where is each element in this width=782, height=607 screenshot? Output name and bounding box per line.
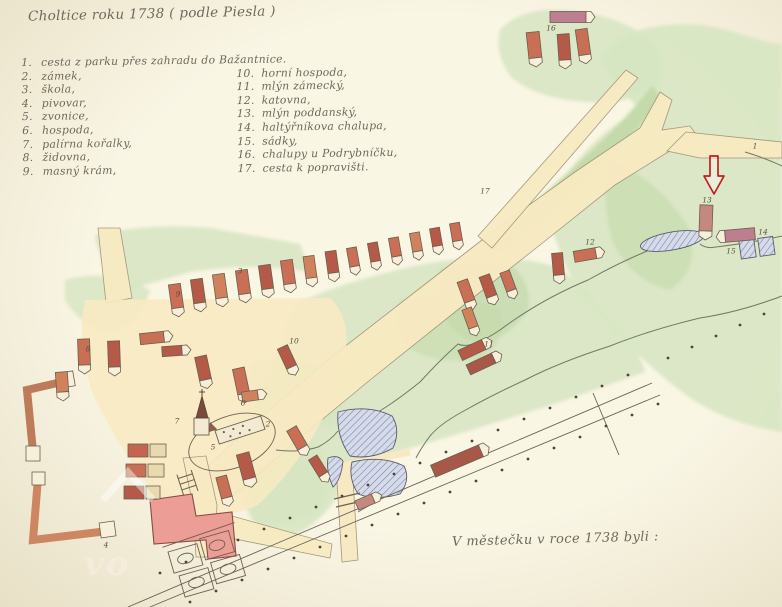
legend-item-number: 5.: [17, 110, 33, 124]
legend-item-number: 8.: [17, 151, 33, 165]
tree-dot: [449, 491, 452, 494]
building-icon: [325, 250, 340, 282]
tree-dot: [601, 385, 604, 388]
legend-item-number: 15.: [237, 134, 253, 148]
map-label-13: 13: [702, 196, 712, 205]
map-label-3: 3: [238, 267, 243, 276]
tree-dot: [215, 590, 218, 593]
building-icon: [303, 255, 318, 287]
building-icon: [431, 441, 492, 477]
tree-dot: [763, 313, 766, 316]
building-icon: [450, 222, 465, 250]
tree-dot: [371, 524, 374, 527]
legend-item-label: mlýn zámecký,: [261, 79, 345, 93]
map-label-7: 7: [175, 417, 180, 426]
legend-item-number: 13.: [237, 107, 253, 121]
building-icon: [108, 341, 121, 376]
legend-item-label: hospoda,: [42, 123, 94, 137]
legend-item-label: horní hospoda,: [261, 65, 347, 79]
legend-item-number: 2.: [16, 70, 32, 84]
map-label-11: 11: [484, 340, 494, 349]
building-icon: [699, 205, 713, 240]
map-label-5: 5: [211, 443, 216, 452]
tree-dot: [667, 357, 670, 360]
map-label-15: 15: [726, 247, 736, 256]
legend-item-label: zámek,: [41, 69, 82, 83]
legend-item-label: masný krám,: [43, 164, 117, 178]
tree-dot: [267, 568, 270, 571]
legend-item-number: 7.: [17, 138, 33, 152]
map-label-16: 16: [546, 24, 556, 33]
map-label-8: 8: [86, 345, 91, 354]
tree-dot: [497, 429, 500, 432]
tree-dot: [715, 335, 718, 338]
tree-dot: [159, 572, 162, 575]
legend-item-number: 6.: [17, 124, 33, 138]
building-icon: [162, 345, 192, 357]
tree-dot: [471, 440, 474, 443]
building-icon: [55, 372, 69, 402]
building-icon: [258, 264, 274, 298]
tree-dot: [397, 513, 400, 516]
building-icon: [550, 12, 595, 23]
map-label-10: 10: [289, 337, 299, 346]
tree-dot: [367, 484, 370, 487]
building-icon: [552, 253, 566, 285]
legend-item-number: 14.: [237, 121, 253, 135]
tree-dot: [319, 546, 322, 549]
tree-dot: [739, 324, 742, 327]
building-icon: [430, 227, 445, 255]
legend-item-number: 11.: [236, 80, 252, 94]
tree-dot: [289, 517, 292, 520]
map-label-4: 4: [104, 541, 109, 550]
tree-dot: [631, 414, 634, 417]
map-label-2: 2: [266, 420, 271, 429]
tree-dot: [523, 418, 526, 421]
map-page: Choltice roku 1738 ( podle Piesla ) 1.ce…: [0, 0, 782, 607]
legend-item-label: sádky,: [262, 134, 298, 147]
tree-dot: [575, 396, 578, 399]
tree-dot: [445, 451, 448, 454]
legend-item-number: 12.: [237, 94, 253, 108]
legend-item-label: chalupy u Podrybníčku,: [262, 146, 397, 161]
legend-item-label: židovna,: [42, 150, 90, 164]
tree-dot: [549, 407, 552, 410]
map-label-12: 12: [585, 238, 595, 247]
tree-dot: [475, 480, 478, 483]
legend-item-label: cesta k popravišti.: [263, 160, 369, 174]
map-label-1: 1: [753, 142, 758, 151]
legend-column-2: 10.horní hospoda,11.mlýn zámecký,12.kato…: [236, 62, 567, 175]
legend-item-label: katovna,: [262, 93, 311, 107]
legend-item-label: zvonice,: [42, 110, 89, 124]
legend-item-number: 9.: [18, 165, 34, 179]
building-icon: [409, 232, 424, 261]
tree-dot: [189, 601, 192, 604]
legend-item-number: 16.: [237, 148, 253, 162]
legend-item-number: 3.: [16, 83, 32, 97]
tree-dot: [345, 535, 348, 538]
tree-dot: [527, 458, 530, 461]
tree-dot: [341, 495, 344, 498]
tree-dot: [241, 579, 244, 582]
tree-dot: [627, 374, 630, 377]
tree-dot: [579, 436, 582, 439]
tree-dot: [293, 557, 296, 560]
tree-dot: [315, 506, 318, 509]
map-label-17: 17: [480, 187, 490, 196]
map-label-14: 14: [758, 228, 768, 237]
legend-item-label: haltýřníkova chalupa,: [262, 119, 387, 134]
map-label-6: 6: [241, 399, 246, 408]
farm-buildings: [124, 444, 166, 499]
legend-item-number: 10.: [236, 66, 252, 80]
tree-dot: [423, 502, 426, 505]
tree-dot: [605, 425, 608, 428]
legend-item-label: pivovar,: [42, 96, 87, 110]
legend-item-number: 4.: [17, 97, 33, 111]
legend-item-label: palírna kořalky,: [42, 136, 132, 150]
tree-dot: [393, 473, 396, 476]
legend-item-label: škola,: [41, 83, 75, 96]
legend-item-label: mlýn poddanský,: [262, 106, 358, 120]
tree-dot: [657, 403, 660, 406]
tree-dot: [263, 528, 266, 531]
tree-dot: [501, 469, 504, 472]
building-icon: [388, 237, 403, 266]
tree-dot: [419, 462, 422, 465]
building-icon: [367, 242, 382, 271]
tree-dot: [237, 539, 240, 542]
tree-dot: [553, 447, 556, 450]
tree-dot: [691, 346, 694, 349]
building-icon: [346, 247, 361, 276]
legend-item-number: 1.: [16, 56, 32, 70]
legend-item-number: 17.: [238, 162, 254, 176]
map-label-9: 9: [176, 290, 181, 299]
